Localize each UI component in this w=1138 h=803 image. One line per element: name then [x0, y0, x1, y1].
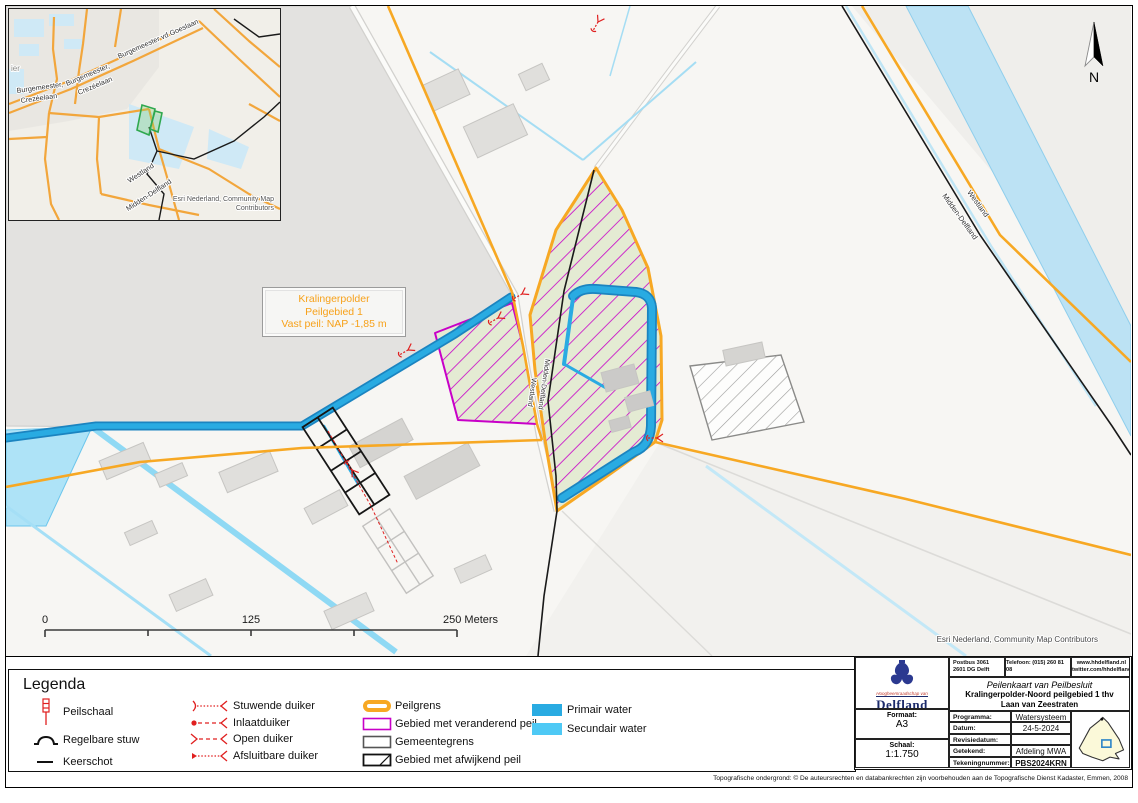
legend-label: Keerschot — [63, 756, 113, 768]
legend-item-peilgrens: Peilgrens — [359, 697, 537, 715]
legend-item-veranderend-peil: Gebied met veranderend peil — [359, 715, 537, 733]
legend-item-afsluitbare-duiker: Afsluitbare duiker — [187, 748, 318, 765]
formaat-cell: Formaat: A3 — [855, 709, 949, 739]
legend-title: Legenda — [23, 676, 85, 694]
inset-map: ier Burgemeester, Crezéelaan Burgemeeste… — [8, 8, 281, 221]
row-label: Tekeningnummer: — [949, 757, 1011, 768]
website: www.hhdelfland.nl — [1072, 660, 1126, 667]
peilgrens-swatch — [359, 699, 395, 713]
open-duiker-icon — [187, 733, 233, 745]
peilgebied-callout-line3: Vast peil: NAP -1,85 m — [270, 318, 398, 331]
legend-item-inlaatduiker: Inlaatduiker — [187, 715, 318, 732]
veranderend-peil-swatch — [359, 717, 395, 731]
inset-attribution-1: Esri Nederland, Community Map — [173, 196, 274, 203]
delfland-logo-icon — [885, 660, 919, 686]
legend-item-secundair-water: Secundair water — [527, 719, 647, 738]
peilgebied-callout-line1: Kralingerpolder — [270, 293, 398, 306]
inset-city-partial: ier — [11, 64, 20, 73]
row-value — [1011, 734, 1071, 745]
afsluitbare-duiker-icon — [187, 750, 233, 762]
scale-end: 250 Meters — [443, 614, 499, 626]
org-name: Delfland — [876, 696, 928, 709]
legend: Legenda Peilschaal Regelbare stuw Keersc… — [8, 669, 856, 772]
copyright-note: Topografische ondergrond: © De auteursre… — [713, 775, 1128, 782]
inset-attribution-2: Contributors — [236, 205, 275, 212]
document-type: Peilenkaart van Peilbesluit — [950, 678, 1129, 690]
legend-label: Gebied met veranderend peil — [395, 718, 537, 730]
legend-label: Stuwende duiker — [233, 700, 315, 712]
primair-water-swatch — [527, 703, 567, 717]
title-block: Hoogheemraadschap van Delfland Formaat: … — [854, 656, 1132, 770]
schaal-value: 1:1.750 — [856, 749, 948, 760]
gemeentegrens-swatch — [359, 735, 395, 749]
delfland-region-map — [1072, 713, 1129, 766]
address-cell: Postbus 3061 2601 DG Delft — [949, 657, 1005, 677]
peilgebied-callout: Kralingerpolder Peilgebied 1 Vast peil: … — [262, 287, 406, 337]
legend-label: Gebied met afwijkend peil — [395, 754, 521, 766]
row-value: Afdeling MWA — [1011, 745, 1071, 756]
row-label: Datum: — [949, 722, 1011, 733]
legend-label: Peilschaal — [63, 706, 113, 718]
inset-canvas: ier Burgemeester, Crezéelaan Burgemeeste… — [9, 9, 280, 220]
phone: Telefoon: (015) 260 81 08 — [1006, 660, 1070, 673]
legend-label: Secundair water — [567, 723, 647, 735]
legend-label: Gemeentegrens — [395, 736, 474, 748]
document-title: Kralingerpolder-Noord peilgebied 1 thv L… — [950, 690, 1129, 709]
legend-label: Regelbare stuw — [63, 734, 139, 746]
legend-item-open-duiker: Open duiker — [187, 731, 318, 748]
legend-item-stuwende-duiker: Stuwende duiker — [187, 698, 318, 715]
row-label: Revisiedatum: — [949, 734, 1011, 745]
peilschaal-icon — [29, 697, 63, 727]
legend-item-gemeentegrens: Gemeentegrens — [359, 733, 537, 751]
legend-label: Primair water — [567, 704, 632, 716]
legend-label: Afsluitbare duiker — [233, 750, 318, 762]
scale-zero: 0 — [42, 614, 48, 626]
formaat-value: A3 — [856, 719, 948, 730]
map-attribution: Esri Nederland, Community Map Contributo… — [937, 635, 1098, 644]
formaat-label: Formaat: — [856, 710, 948, 719]
map-sheet: Midden-Delfland Westland Westland Midden… — [0, 0, 1138, 803]
legend-label: Open duiker — [233, 733, 293, 745]
secundair-water-swatch — [527, 722, 567, 736]
schaal-label: Schaal: — [856, 740, 948, 749]
document-title-cell: Peilenkaart van Peilbesluit Kralingerpol… — [949, 677, 1130, 711]
peilgebied-callout-line2: Peilgebied 1 — [270, 306, 398, 319]
main-map: Midden-Delfland Westland Westland Midden… — [6, 6, 1131, 657]
address-line2: 2601 DG Delft — [953, 667, 1004, 674]
row-value: 24-5-2024 14:55 — [1011, 722, 1071, 733]
afwijkend-peil-swatch — [359, 753, 395, 767]
legend-item-primair-water: Primair water — [527, 700, 647, 719]
org-logo-cell: Hoogheemraadschap van Delfland — [855, 657, 949, 709]
regelbare-stuw-icon — [29, 734, 63, 746]
scale-mid: 125 — [242, 614, 260, 626]
legend-label: Inlaatduiker — [233, 717, 290, 729]
keerschot-icon — [29, 759, 63, 765]
web-cell: www.hhdelfland.nl twitter.com/hhdelfland — [1071, 657, 1130, 677]
twitter: twitter.com/hhdelfland — [1072, 667, 1126, 674]
inlaatduiker-icon — [187, 717, 233, 729]
region-locator-cell — [1071, 711, 1130, 768]
legend-item-keerschot: Keerschot — [29, 752, 139, 772]
address-line1: Postbus 3061 — [953, 660, 1004, 667]
row-label: Getekend: — [949, 745, 1011, 756]
row-label: Programma: — [949, 711, 1011, 722]
north-label: N — [1089, 69, 1099, 85]
schaal-cell: Schaal: 1:1.750 — [855, 739, 949, 768]
stuwende-duiker-icon — [187, 700, 233, 712]
legend-item-afwijkend-peil: Gebied met afwijkend peil — [359, 751, 537, 769]
legend-label: Peilgrens — [395, 700, 441, 712]
legend-item-regelbare-stuw: Regelbare stuw — [29, 728, 139, 752]
row-value: PBS2024KRN 1 — [1011, 757, 1071, 768]
phone-cell: Telefoon: (015) 260 81 08 — [1005, 657, 1071, 677]
sheet-frame: Midden-Delfland Westland Westland Midden… — [5, 5, 1133, 788]
legend-item-peilschaal: Peilschaal — [29, 696, 139, 728]
row-value: Watersysteem — [1011, 711, 1071, 722]
